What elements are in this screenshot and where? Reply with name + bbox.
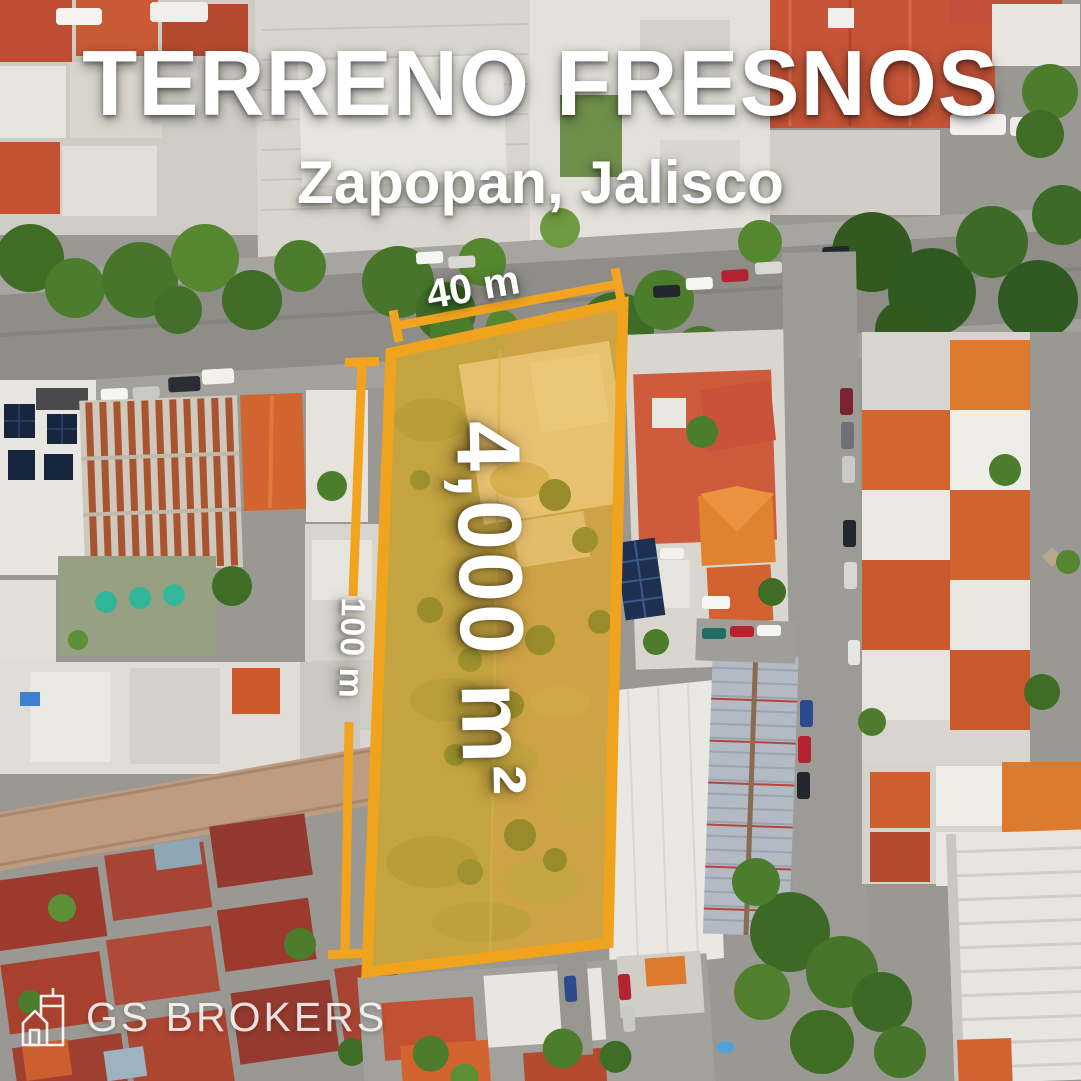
parcel-length-label: 100 m	[330, 597, 372, 699]
brand-logo-icon	[20, 986, 74, 1048]
brand-logo: GS BROKERS	[20, 986, 387, 1048]
brand-name: GS BROKERS	[86, 994, 387, 1041]
rooftops-far-right	[858, 332, 1081, 772]
parcel-area-label: 4,000 m²	[435, 420, 545, 798]
poster-subtitle: Zapopan, Jalisco	[0, 148, 1081, 217]
listing-poster: TERRENO FRESNOS Zapopan, Jalisco 40 m 10…	[0, 0, 1081, 1081]
street-right	[782, 251, 868, 964]
poster-title: TERRENO FRESNOS	[16, 30, 1065, 137]
